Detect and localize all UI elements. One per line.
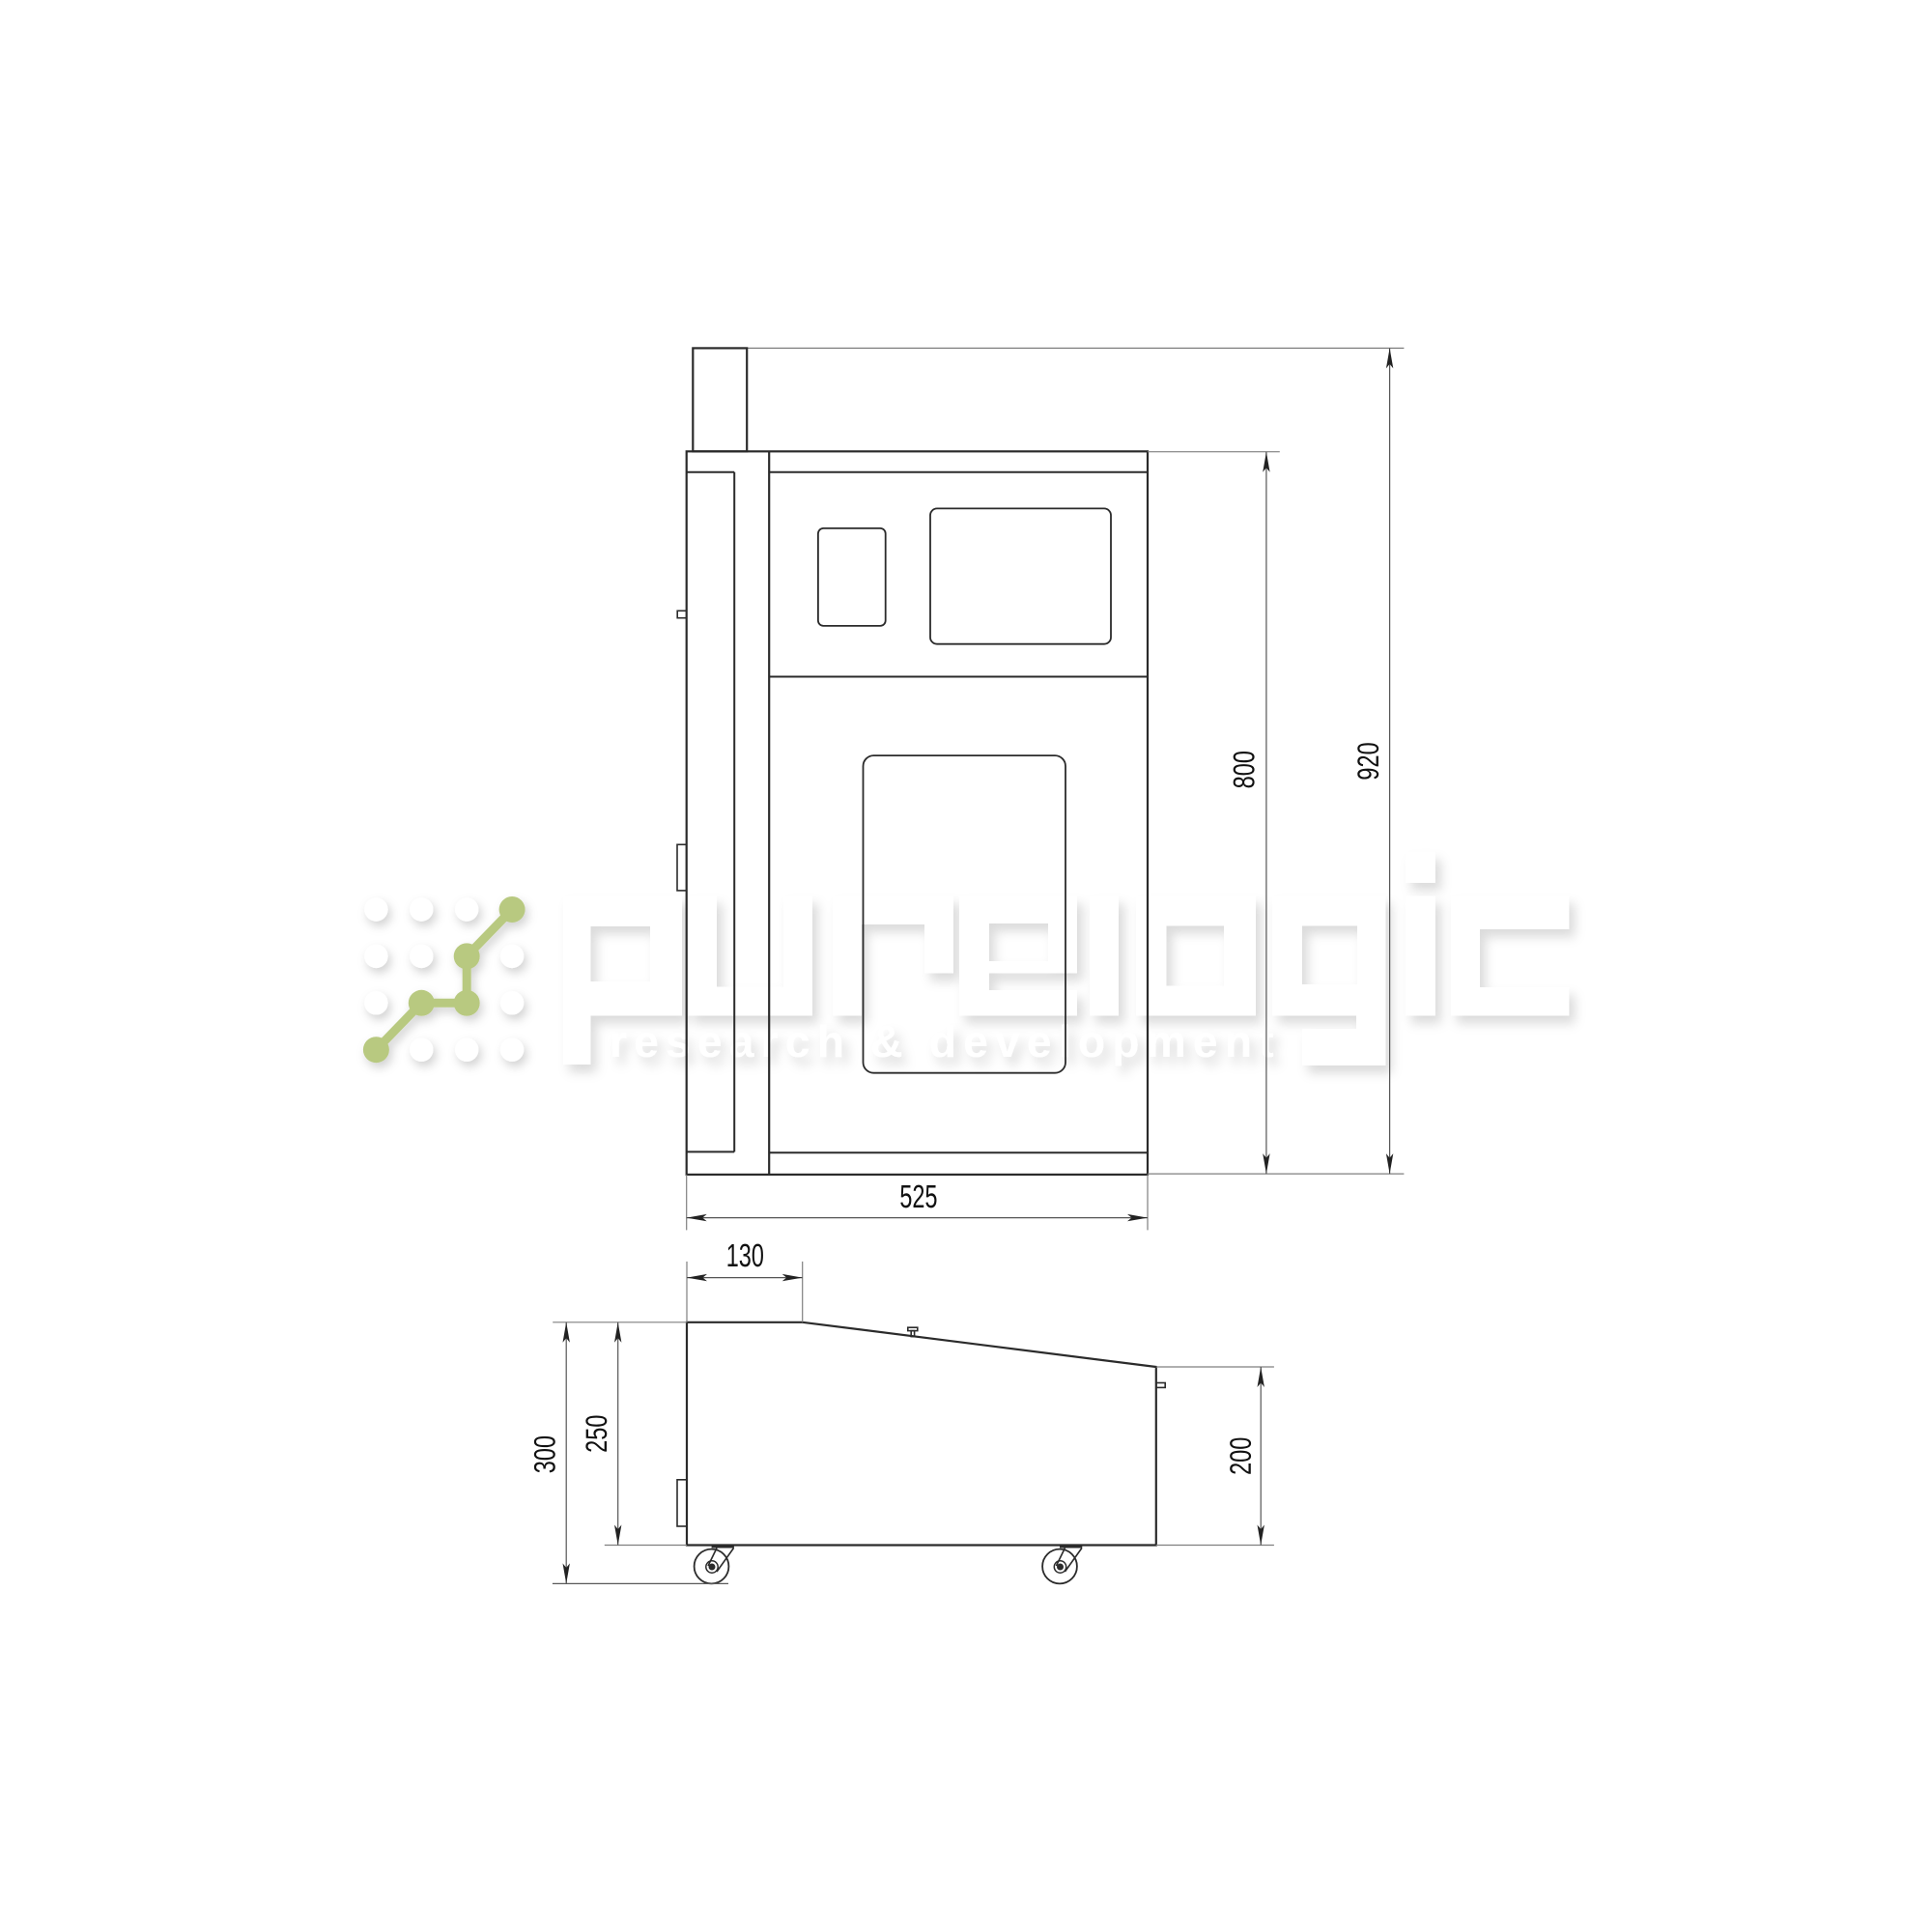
svg-text:research & development: research & development xyxy=(610,1016,1281,1066)
